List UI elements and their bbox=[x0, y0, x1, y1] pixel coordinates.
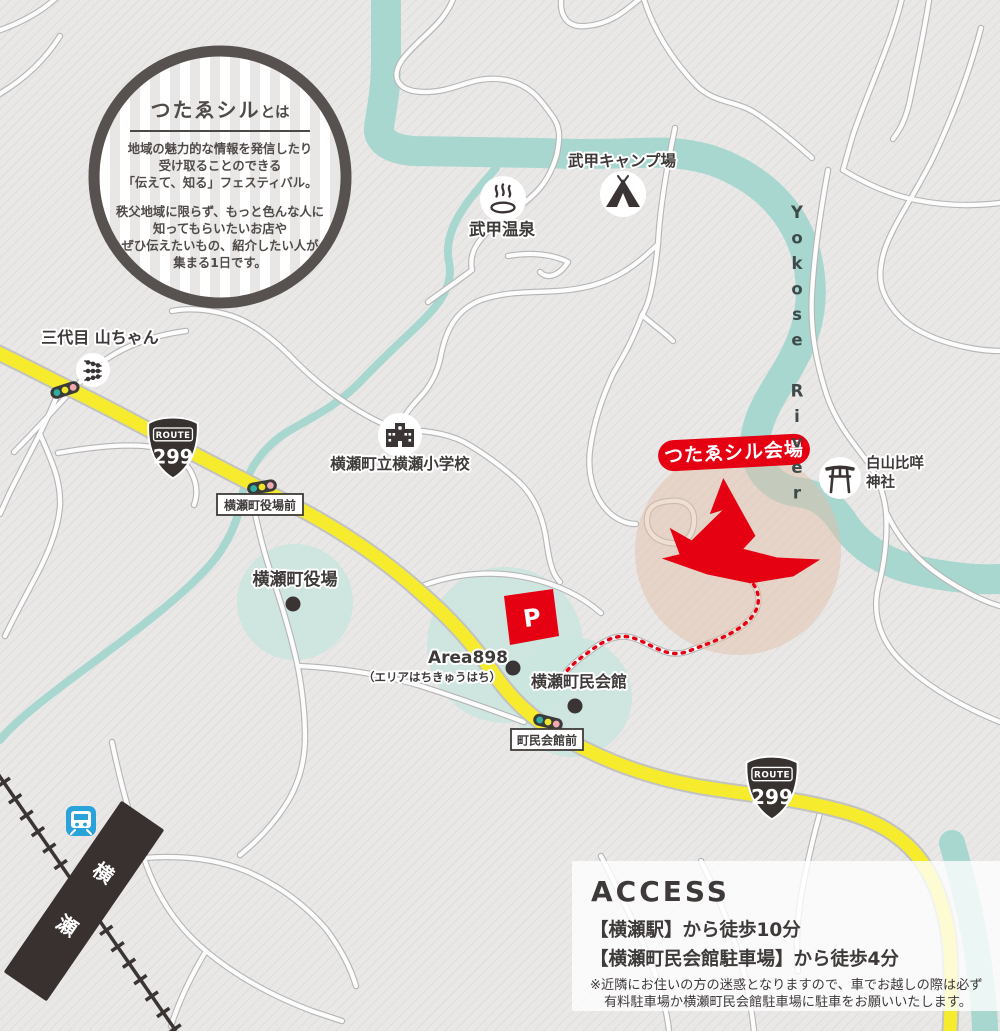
label-yamachan: 三代目 山ちゃん bbox=[41, 328, 159, 347]
badge-text: 地域の魅力的な情報を発信したり bbox=[128, 141, 312, 156]
access-title: ACCESS bbox=[591, 875, 730, 908]
community-hall-dot bbox=[568, 699, 583, 714]
badge-text: 秩父地域に限らず、もっと色んな人に bbox=[116, 204, 324, 219]
sign-label: 町民会館前 bbox=[517, 733, 577, 748]
label-onsen: 武甲温泉 bbox=[469, 219, 536, 239]
badge-text: 集まる1日です。 bbox=[172, 255, 266, 270]
label-shrine-2: 神社 bbox=[866, 473, 895, 491]
label-school: 横瀬町立横瀬小学校 bbox=[330, 454, 470, 473]
sign-town-hall-front: 横瀬町役場前 bbox=[217, 494, 303, 515]
label-town-hall: 横瀬町役場 bbox=[253, 569, 338, 590]
label-shrine-1: 白山比咩 bbox=[866, 454, 924, 472]
about-badge: つたゑシルとは 地域の魅力的な情報を発信したり 受け取ることのできる 「伝えて、… bbox=[94, 51, 346, 303]
school-icon bbox=[378, 413, 422, 457]
map-canvas: 横瀬 P つたゑシル会場 ROUTE 299 ROUTE 299 bbox=[0, 0, 1000, 1031]
tent-icon bbox=[600, 171, 646, 217]
yakitori-icon bbox=[76, 353, 110, 387]
parking-marker: P bbox=[504, 589, 559, 645]
label-camp: 武甲キャンプ場 bbox=[568, 151, 677, 170]
access-note-1: ※近隣にお住いの方の迷惑となりますので、車でお越しの際は必ず bbox=[590, 977, 983, 993]
onsen-icon bbox=[480, 176, 526, 222]
label-community-hall: 横瀬町民会館 bbox=[531, 672, 627, 691]
sign-label: 横瀬町役場前 bbox=[224, 498, 296, 513]
sign-community-hall-front: 町民会館前 bbox=[511, 729, 583, 750]
label-area898: Area898 bbox=[428, 648, 508, 668]
route-label: ROUTE bbox=[156, 431, 191, 441]
badge-text: 受け取ることのできる bbox=[159, 158, 282, 173]
train-icon bbox=[66, 806, 96, 836]
town-hall-dot bbox=[286, 597, 301, 612]
route-label: ROUTE bbox=[754, 771, 790, 781]
torii-icon bbox=[819, 457, 861, 499]
route-number: 299 bbox=[751, 785, 793, 809]
access-note-2: 有料駐車場か横瀬町民会館駐車場に駐車をお願いいたします。 bbox=[604, 994, 972, 1010]
access-box: ACCESS 【横瀬駅】から徒歩10分 【横瀬町民会館駐車場】から徒歩4分 ※近… bbox=[572, 861, 1000, 1011]
badge-text: ぜひ伝えたいもの、紹介したい人が bbox=[122, 238, 319, 253]
label-area898-sub: （エリアはちきゅうはち） bbox=[363, 670, 501, 684]
access-line-parking: 【横瀬町民会館駐車場】から徒歩4分 bbox=[590, 948, 899, 970]
badge-text: 「伝えて、知る」フェスティバル。 bbox=[123, 175, 318, 190]
event-access-map: 横瀬 P つたゑシル会場 ROUTE 299 ROUTE 299 bbox=[0, 0, 1000, 1031]
route-number: 299 bbox=[153, 446, 194, 469]
badge-text: 知ってもらいたいお店や bbox=[152, 221, 287, 236]
access-line-station: 【横瀬駅】から徒歩10分 bbox=[590, 919, 801, 941]
